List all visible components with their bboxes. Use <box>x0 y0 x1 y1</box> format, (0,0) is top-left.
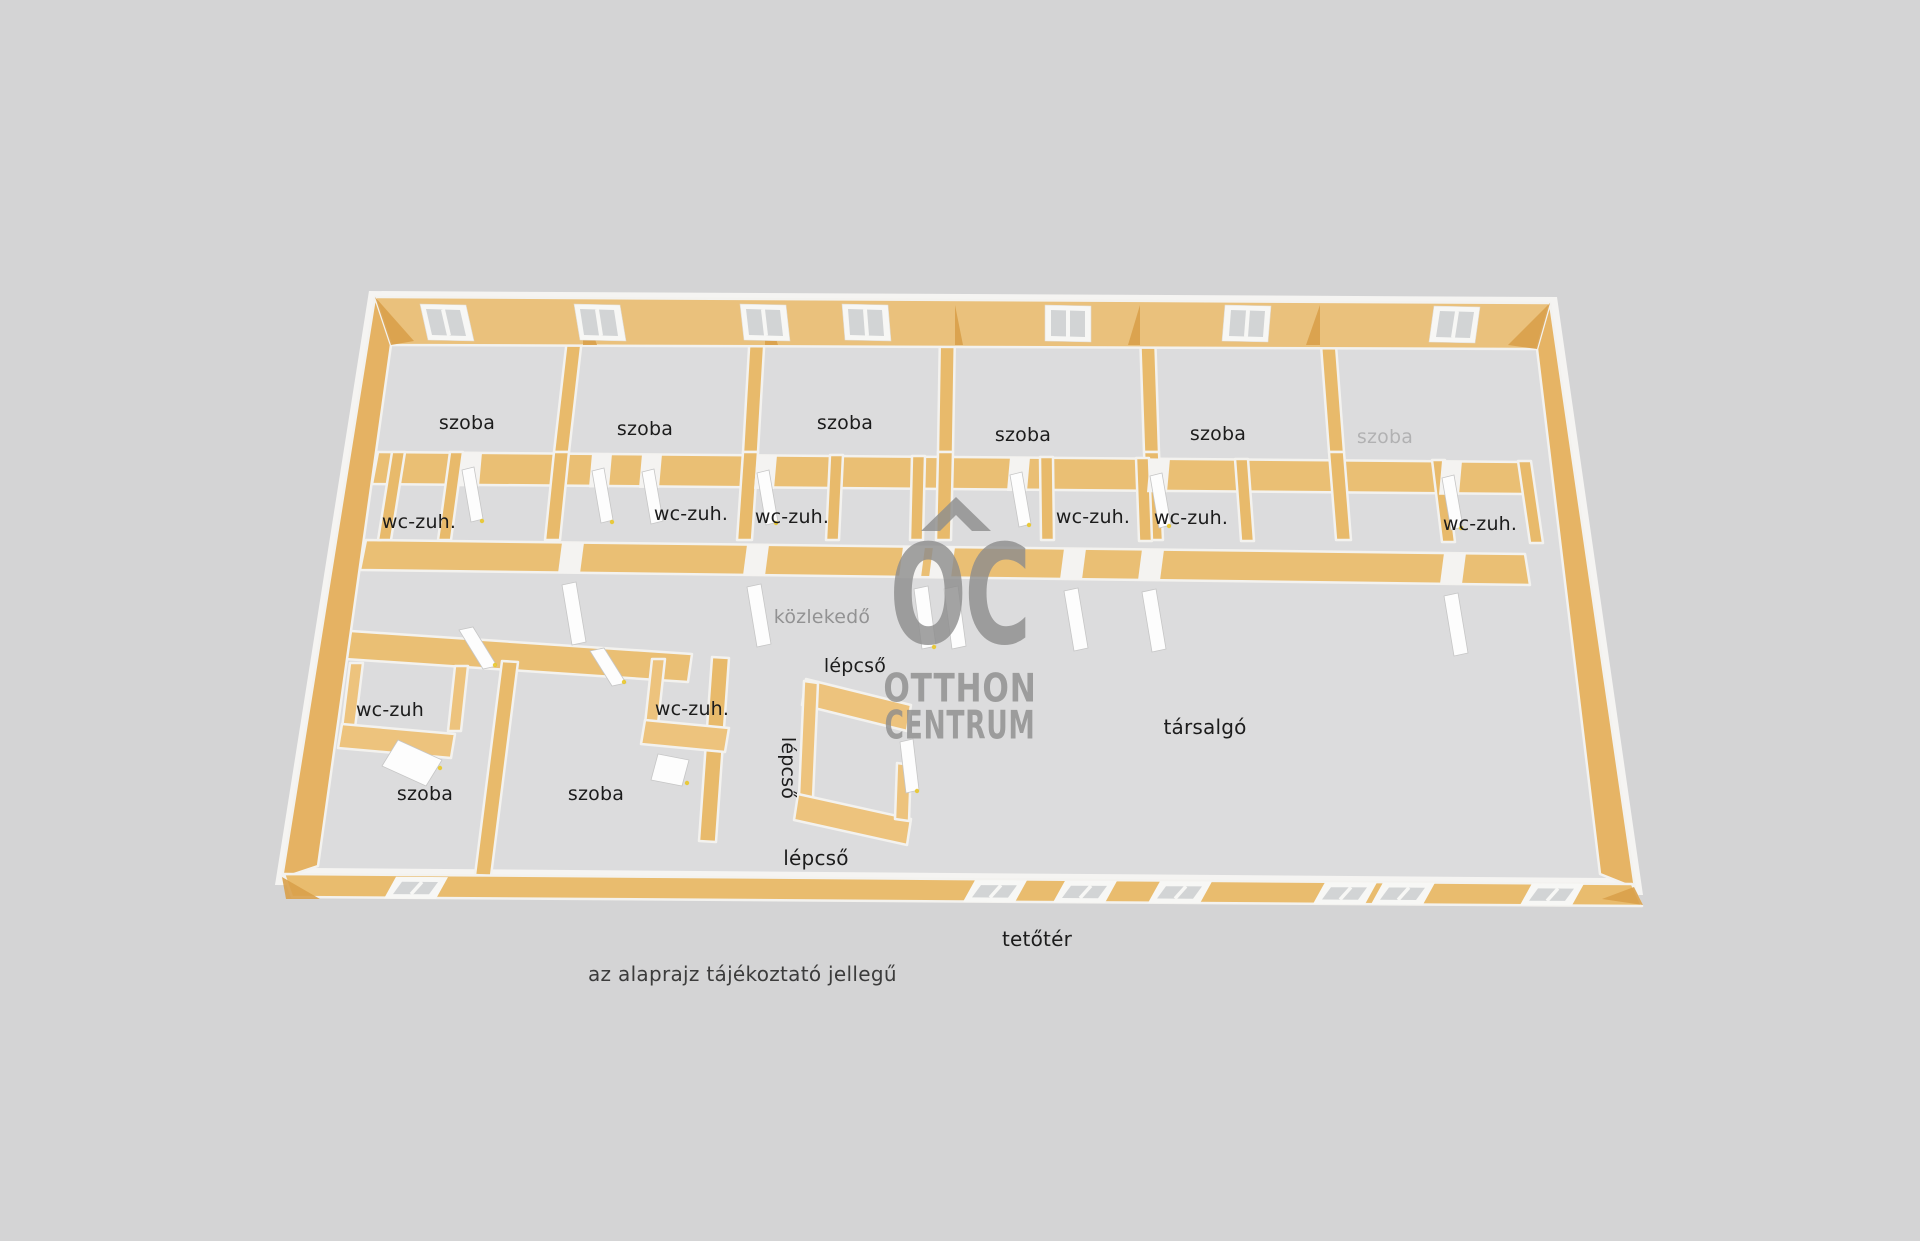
lounge-label: társalgó <box>1163 715 1246 739</box>
watermark-line2: CENTRUM <box>885 704 1036 749</box>
stairs-label-side: lépcső <box>777 737 799 799</box>
attic-label: tetőtér <box>1002 927 1072 951</box>
door-gap <box>1138 549 1164 580</box>
room-label-szoba-2: szoba <box>617 418 673 440</box>
bath-label-6: wc-zuh. <box>1443 513 1517 535</box>
door-gap <box>558 543 584 574</box>
floorplan-canvas: OC OTTHON CENTRUM szoba szoba szoba szob… <box>0 0 1920 1241</box>
skylight-window <box>574 304 626 341</box>
disclaimer-text: az alaprajz tájékoztató jellegű <box>588 962 897 986</box>
door-gap <box>1060 549 1086 580</box>
skylight-window <box>1045 305 1091 342</box>
bath-label-3: wc-zuh. <box>755 506 829 528</box>
room-label-szoba-1: szoba <box>439 412 495 434</box>
room-label-szoba-4: szoba <box>995 424 1051 446</box>
bath-label-2: wc-zuh. <box>654 503 728 525</box>
stairs-label-bottom: lépcső <box>783 846 848 870</box>
wall-partition <box>938 331 955 452</box>
room-label-szoba-5: szoba <box>1190 423 1246 445</box>
bath-label-1: wc-zuh. <box>382 511 456 533</box>
watermark-monogram: OC <box>890 515 1029 676</box>
door-gap <box>743 545 769 576</box>
wall-roof-top <box>375 297 1550 349</box>
wall-stub <box>1040 457 1054 540</box>
room-label-szoba-lower-1: szoba <box>397 783 453 805</box>
skylight-window <box>1222 305 1271 342</box>
door-leaf <box>651 754 689 786</box>
stairs-label-top: lépcső <box>824 655 886 677</box>
skylight-window <box>1429 306 1480 343</box>
bath-label-lower-1: wc-zuh <box>356 699 424 721</box>
bath-label-5: wc-zuh. <box>1154 507 1228 529</box>
door-gap <box>1440 553 1466 584</box>
skylight-window <box>842 304 891 341</box>
corridor-label: közlekedő <box>774 606 870 628</box>
room-label-szoba-lower-2: szoba <box>568 783 624 805</box>
room-label-szoba-6: szoba <box>1357 426 1413 448</box>
skylight-window <box>420 304 474 341</box>
skylight-window <box>740 304 790 341</box>
room-label-szoba-3: szoba <box>817 412 873 434</box>
bath-label-4: wc-zuh. <box>1056 506 1130 528</box>
bath-label-lower-2: wc-zuh. <box>655 698 729 720</box>
wall-partition <box>1140 332 1159 452</box>
